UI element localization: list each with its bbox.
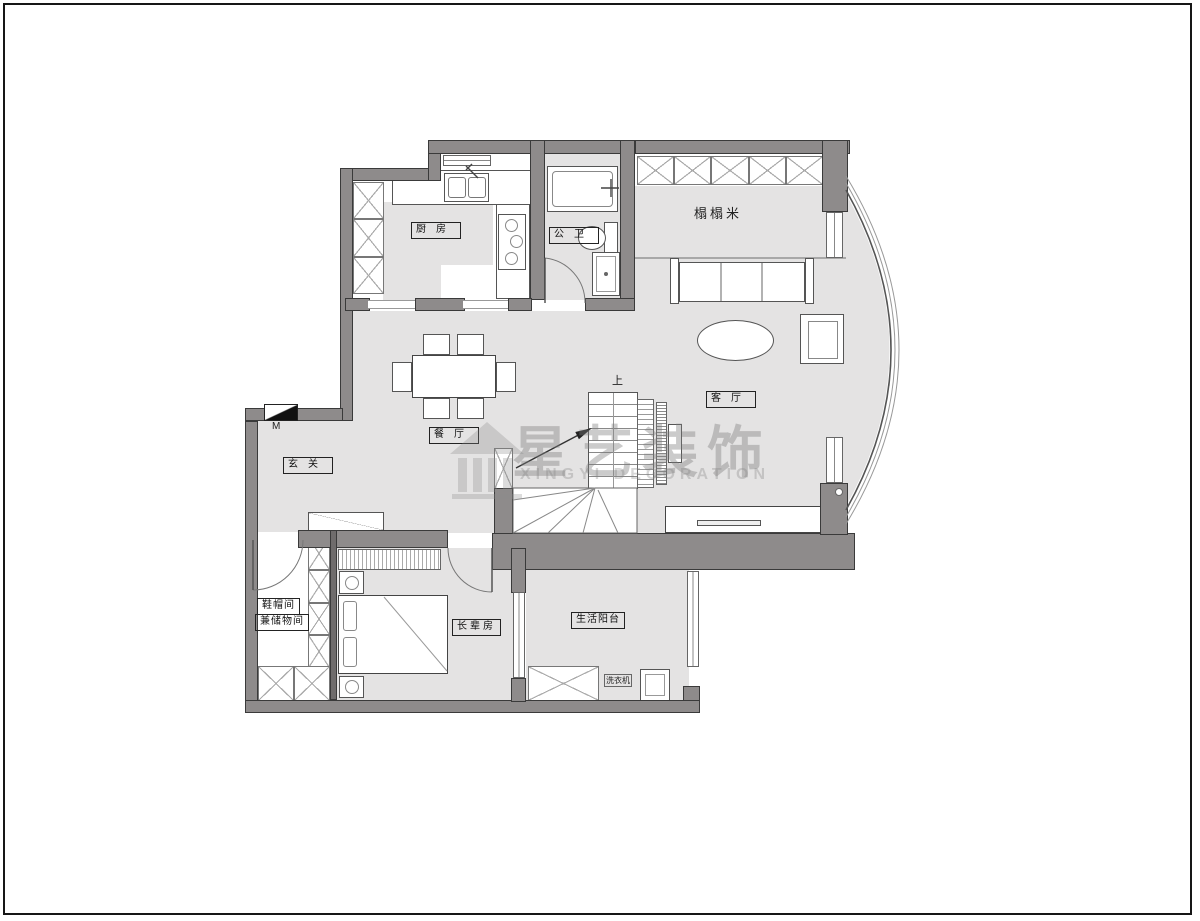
staircase-flight <box>588 392 638 489</box>
wall-bottom <box>245 700 700 713</box>
washing-machine-label: 洗衣机 <box>604 674 632 687</box>
wall-kitchen-bottom-1 <box>345 298 370 311</box>
coffee-table-oval <box>697 320 774 361</box>
bedroom-wardrobe <box>338 549 441 570</box>
cloakroom-label-line1: 鞋帽间 <box>257 598 300 615</box>
entry-door-marker <box>264 404 298 421</box>
wall-bedroom-right-lower <box>511 678 526 702</box>
window-cell <box>749 156 786 185</box>
kitchen-stove <box>498 214 526 270</box>
lamp <box>345 680 359 694</box>
stair-side-shelf <box>637 399 654 488</box>
cabinet-cell <box>353 257 384 294</box>
wall-divider-cloakroom <box>330 530 337 700</box>
dining-chair-left <box>392 362 412 392</box>
shower-basin <box>592 252 620 296</box>
sink-basin-right <box>468 177 486 198</box>
nightstand-top <box>339 571 364 594</box>
cabinet-cell <box>258 666 294 701</box>
wardrobe-cell <box>308 570 330 603</box>
dining-table <box>412 355 496 398</box>
pillow-1 <box>343 601 357 631</box>
tatami-platform-edge <box>635 257 846 259</box>
balcony-right-window <box>687 571 699 667</box>
pillow-2 <box>343 637 357 667</box>
bathtub-inner <box>552 171 613 207</box>
stair-column-wall <box>494 488 513 534</box>
stair-column-cabinet <box>494 448 513 489</box>
bed <box>338 595 448 674</box>
wall-living-bottom-slab <box>492 533 855 570</box>
wall-kitchen-left <box>340 168 353 421</box>
floor-plan: M 上 <box>0 0 1200 921</box>
bedroom-balcony-window <box>513 592 525 678</box>
bay-window-arcs <box>846 176 899 524</box>
nightstand-bottom <box>339 676 364 698</box>
bay-side-window-bottom <box>826 437 843 483</box>
cloakroom-bottom-cabinets <box>258 666 330 701</box>
burner-2 <box>510 235 523 248</box>
sink-basin-left <box>448 177 466 198</box>
tv-set <box>697 520 761 526</box>
burner-1 <box>505 219 518 232</box>
kitchen-tall-cabinets <box>353 182 384 294</box>
cabinet-cell <box>353 219 384 256</box>
entry-label: 玄关 <box>283 457 333 474</box>
toilet-tank <box>604 222 618 254</box>
sofa-arm-right <box>805 258 814 304</box>
entry-door-marker-label: M <box>272 421 280 432</box>
entry-shoe-cabinet <box>308 512 384 531</box>
cloakroom-wardrobe <box>308 537 330 668</box>
window-cell <box>711 156 748 185</box>
dining-chair-bottom-right <box>457 398 484 419</box>
dining-label: 餐厅 <box>429 427 479 444</box>
window-cell <box>786 156 823 185</box>
bay-side-window-top <box>826 212 843 258</box>
living-label: 客厅 <box>706 391 756 408</box>
balcony-cabinet <box>528 666 599 701</box>
washing-machine <box>640 669 670 701</box>
kitchen-opening-1 <box>368 300 416 309</box>
tatami-window-cabinets <box>637 156 823 185</box>
dining-chair-top-left <box>423 334 450 355</box>
bathroom-label: 公卫 <box>549 227 599 244</box>
tatami-label: 榻榻米 <box>694 203 742 222</box>
wall-bath-bottom <box>585 298 635 311</box>
washer-inner <box>645 674 665 696</box>
bay-floor-fill <box>845 192 890 508</box>
stairs-up-label: 上 <box>612 372 623 388</box>
dining-chair-right <box>496 362 516 392</box>
window-cell <box>674 156 711 185</box>
cloakroom-label-line2: 兼储物间 <box>255 614 309 631</box>
wall-kitchen-top <box>340 168 436 181</box>
lamp <box>345 576 359 590</box>
stair-side-radiator <box>656 402 667 485</box>
dining-chair-top-right <box>457 334 484 355</box>
cabinet-cell <box>353 182 384 219</box>
armchair <box>800 314 844 364</box>
balcony-label: 生活阳台 <box>571 612 625 629</box>
door-stop-dot <box>835 488 843 496</box>
wall-kitchen-bottom-3 <box>508 298 532 311</box>
burner-3 <box>505 252 518 265</box>
wall-tatami-top <box>635 140 850 154</box>
stair-center-rail <box>613 393 614 490</box>
sofa-arm-left <box>670 258 679 304</box>
dining-chair-bottom-left <box>423 398 450 419</box>
wall-corner-bottom-right <box>820 483 848 535</box>
elder-room-label: 长辈房 <box>452 619 501 636</box>
kitchen-top-window <box>443 155 491 166</box>
wall-bath-right <box>620 140 635 300</box>
armchair-seat <box>808 321 838 359</box>
shower-inner <box>596 256 616 292</box>
window-cell <box>637 156 674 185</box>
kitchen-label: 厨房 <box>411 222 461 239</box>
kitchen-opening-2 <box>463 300 509 309</box>
wall-kitchen-bottom-2 <box>415 298 465 311</box>
wardrobe-cell <box>308 603 330 636</box>
wall-left-outer <box>245 421 258 713</box>
wall-corner-top-right <box>822 140 848 212</box>
cloakroom-door <box>253 540 303 590</box>
wall-bath-left <box>530 140 545 300</box>
wall-hall-bottom <box>298 530 448 548</box>
floor-kitchen-island-b <box>383 263 441 300</box>
kitchen-sink <box>444 173 489 202</box>
bathtub <box>547 166 618 212</box>
cabinet-cell <box>294 666 330 701</box>
wall-bedroom-right-upper <box>511 548 526 593</box>
wardrobe-cell <box>308 635 330 668</box>
stair-side-cabinet <box>668 424 682 463</box>
sofa <box>679 262 805 302</box>
